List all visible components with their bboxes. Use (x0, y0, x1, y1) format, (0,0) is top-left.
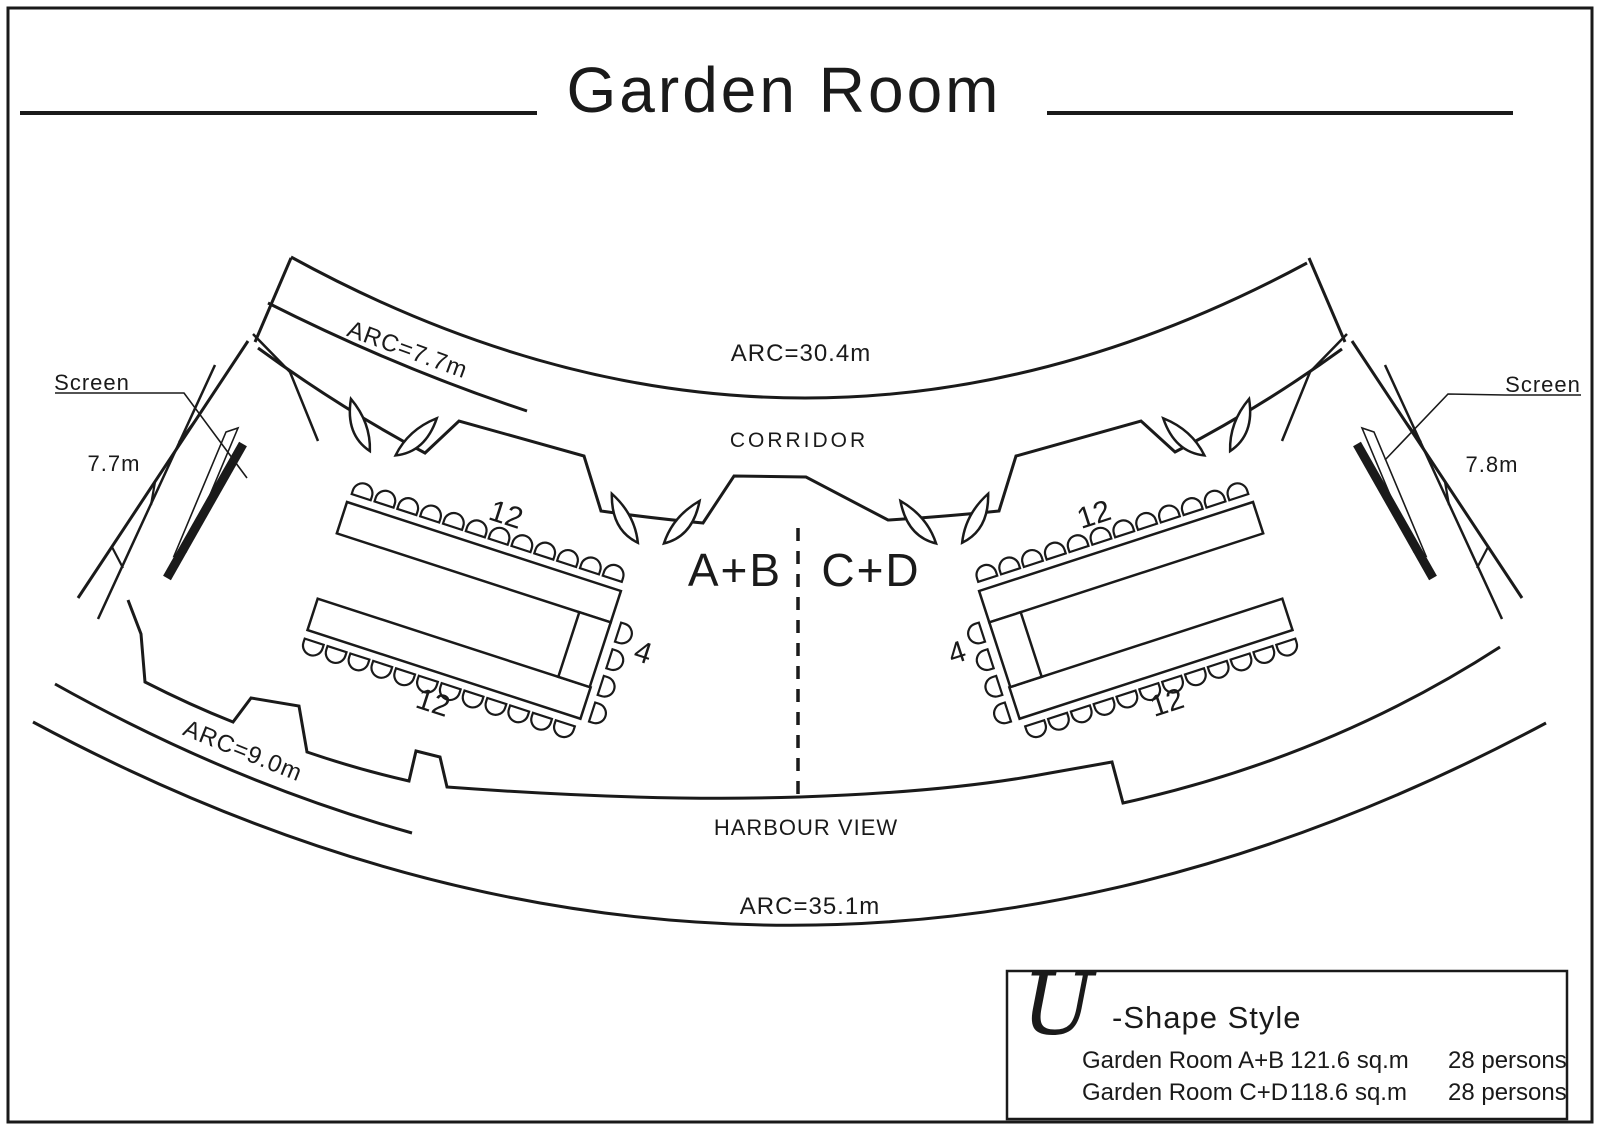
left-wall (78, 258, 318, 619)
floor-plan-page: Garden Room ARC=30.4m ARC=7.7m ARC=9.0m … (0, 0, 1600, 1131)
legend-style-name: -Shape Style (1112, 1000, 1302, 1035)
corridor-label: CORRIDOR (730, 429, 868, 452)
arc-bottom-outer-label: ARC=35.1m (740, 893, 880, 920)
page-border (8, 8, 1592, 1122)
seat-count: 12 (1073, 494, 1115, 536)
floor-plan-drawing: Garden Room ARC=30.4m ARC=7.7m ARC=9.0m … (0, 0, 1600, 1131)
legend-box: U -Shape Style Garden Room A+B 121.6 sq.… (1007, 955, 1567, 1119)
room-cd-label: C+D (821, 544, 920, 596)
u-shape-tables-right (949, 480, 1301, 748)
legend-room-name: Garden Room C+D (1082, 1079, 1288, 1106)
page-title: Garden Room (567, 54, 1002, 126)
u-shape-tables-left (298, 480, 650, 748)
harbour-view-label: HARBOUR VIEW (714, 815, 898, 840)
legend-room-area: 121.6 sq.m (1290, 1047, 1409, 1074)
door-swing-icon (340, 397, 437, 465)
room-ab-label: A+B (688, 544, 782, 596)
door-swing-icon (900, 492, 993, 549)
right-wall (1282, 258, 1522, 619)
seat-count: 4 (630, 635, 656, 672)
arc-top-left-label: ARC=7.7m (344, 316, 472, 384)
arc-top-outer-label: ARC=30.4m (731, 340, 871, 367)
dim-right-label: 7.8m (1466, 452, 1519, 477)
seat-count: 4 (944, 635, 970, 672)
screen-left-label: Screen (54, 370, 130, 395)
legend-room-name: Garden Room A+B (1082, 1047, 1284, 1074)
legend-room-capacity: 28 persons (1448, 1079, 1567, 1106)
legend-style-initial: U (1022, 955, 1097, 1055)
legend-room-area: 118.6 sq.m (1290, 1079, 1407, 1106)
legend-room-capacity: 28 persons (1448, 1047, 1567, 1074)
door-swing-icon (607, 492, 700, 549)
seat-count: 12 (485, 494, 527, 536)
screen-right-label: Screen (1505, 372, 1581, 397)
dim-left-label: 7.7m (88, 451, 141, 476)
